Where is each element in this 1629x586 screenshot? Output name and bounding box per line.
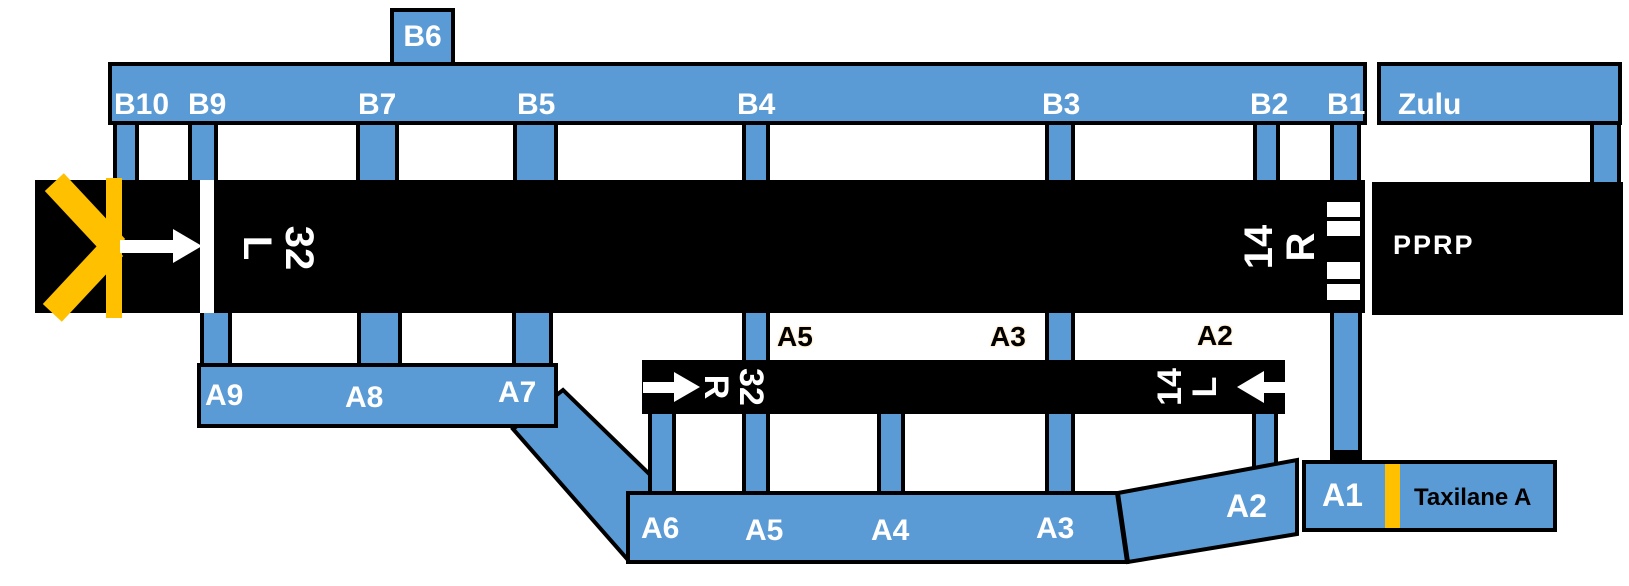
taxiway-a5-label: A5 [745, 516, 783, 546]
taxiway-a2-segment-label: A2 [1226, 490, 1267, 522]
taxiway-a3-label: A3 [1036, 514, 1074, 544]
taxilane-a-label: Taxilane A [1414, 486, 1531, 510]
taxiway-a4-label: A4 [871, 516, 909, 546]
taxiway-a6-label: A6 [641, 514, 679, 544]
taxilane-a-yellow-stripe [1385, 464, 1400, 528]
taxiway-a2-wedge [1118, 460, 1297, 562]
taxiway-a1-label: A1 [1322, 479, 1363, 511]
airport-taxiway-diagram: B6 B10 B9 B7 B5 B4 B3 B2 B1 Zulu 32 L 14… [0, 0, 1629, 586]
